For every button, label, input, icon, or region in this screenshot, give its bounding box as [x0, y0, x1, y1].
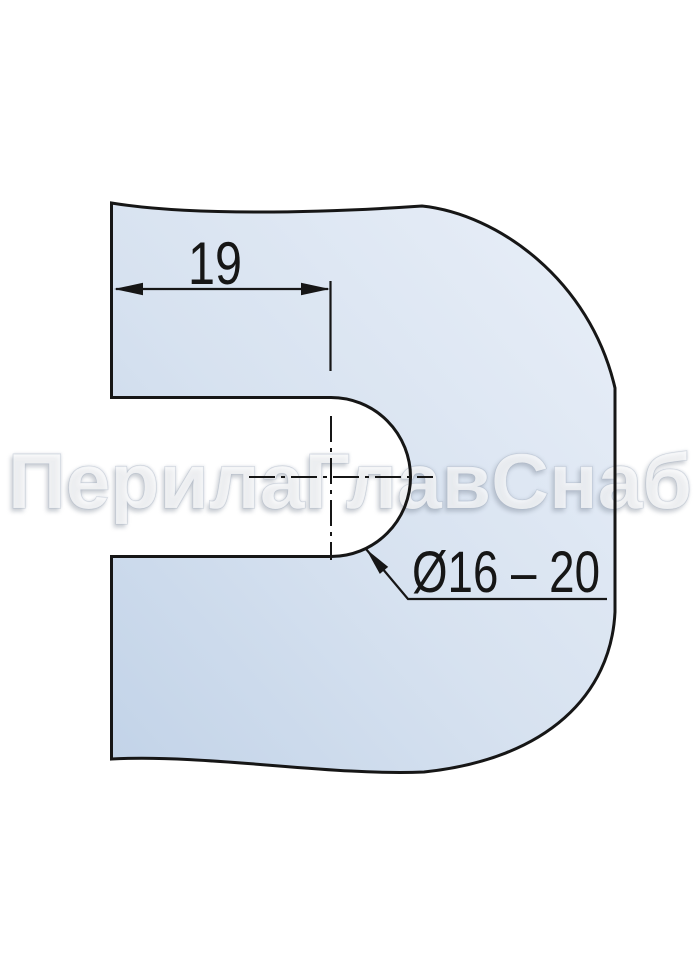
technical-drawing: ПерилаГлавСнаб 19 Ø16 – 20: [0, 0, 698, 970]
watermark-text: ПерилаГлавСнаб: [8, 437, 692, 525]
width-dimension-label: 19: [188, 230, 242, 297]
diameter-dimension-label: Ø16 – 20: [412, 540, 600, 605]
drawing-canvas: ПерилаГлавСнаб 19 Ø16 – 20: [0, 0, 698, 970]
